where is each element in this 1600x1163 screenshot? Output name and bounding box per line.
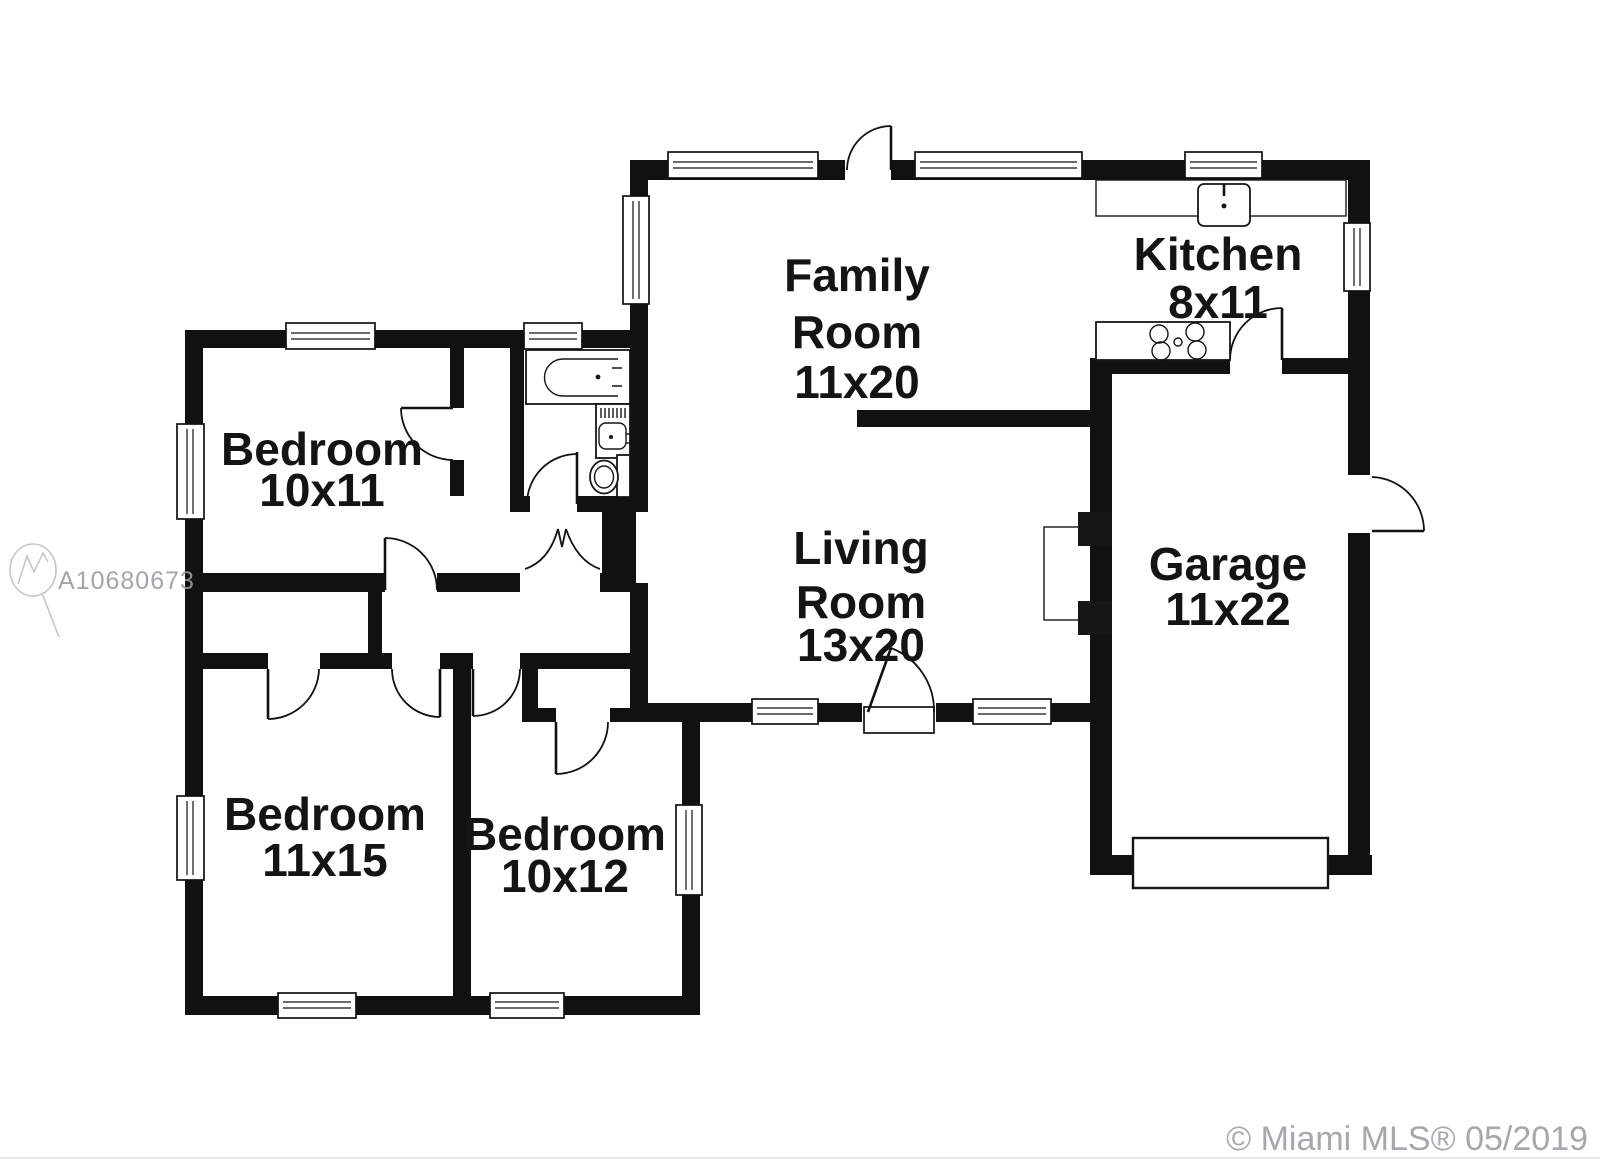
window-icon — [915, 152, 1082, 178]
window-icon — [623, 196, 649, 304]
room-dims: 11x20 — [794, 356, 919, 408]
door-icon — [392, 669, 440, 717]
room-dims: 11x22 — [1165, 583, 1290, 635]
mls-watermark: A10680673 — [10, 544, 195, 637]
room-dims: 13x20 — [797, 619, 925, 671]
copyright-text: © Miami MLS® 05/2019 — [1226, 1120, 1588, 1158]
miami-mls-logo-icon — [10, 544, 59, 637]
floor-plan-image: Family Room 11x20 Kitchen 8x11 Living Ro… — [0, 0, 1600, 1163]
window-icon — [676, 805, 702, 895]
room-dims: 11x15 — [262, 834, 387, 886]
room-dims: 10x11 — [259, 464, 384, 516]
room-name: Room — [792, 306, 922, 358]
window-icon — [286, 323, 375, 349]
room-name: Bedroom — [224, 788, 426, 840]
window-icon — [973, 699, 1051, 724]
window-icon — [177, 796, 204, 880]
window-icon — [1185, 152, 1262, 178]
room-name: Living — [793, 522, 928, 574]
garage-door-icon — [1133, 838, 1328, 888]
window-icon — [1344, 223, 1370, 291]
window-icon — [668, 152, 818, 178]
room-label-living-room: Living Room 13x20 — [793, 522, 928, 671]
door-icon — [1372, 477, 1424, 531]
room-label-family-room: Family Room 11x20 — [784, 249, 930, 408]
door-icon — [527, 452, 577, 504]
room-dims: 8x11 — [1168, 276, 1268, 328]
door-icon — [385, 538, 437, 590]
image-bottom-edge — [0, 1157, 1600, 1159]
door-icon — [268, 669, 319, 719]
toilet-icon — [590, 455, 630, 497]
door-icon — [473, 669, 520, 716]
door-icon — [556, 722, 608, 774]
bathtub-icon — [526, 350, 630, 404]
window-icon — [524, 323, 582, 349]
room-label-bedroom-3: Bedroom 10x12 — [464, 808, 666, 902]
doors — [268, 126, 1424, 774]
floor-plan-page: Family Room 11x20 Kitchen 8x11 Living Ro… — [0, 0, 1600, 1163]
window-icon — [490, 993, 564, 1018]
room-label-garage: Garage 11x22 — [1149, 538, 1308, 635]
double-door-icon — [525, 529, 600, 569]
window-icon — [177, 424, 204, 519]
room-name: Kitchen — [1134, 228, 1303, 280]
window-icon — [752, 699, 818, 724]
room-dims: 10x12 — [501, 850, 629, 902]
vanity-sink-icon — [596, 404, 634, 458]
room-name: Family — [784, 249, 930, 301]
room-label-bedroom-1: Bedroom 10x11 — [221, 423, 423, 516]
room-label-kitchen: Kitchen 8x11 — [1134, 228, 1303, 328]
window-icon — [278, 993, 356, 1018]
kitchen-sink-icon — [1198, 184, 1250, 226]
watermark-id: A10680673 — [58, 567, 195, 595]
room-label-bedroom-2: Bedroom 11x15 — [224, 788, 426, 886]
